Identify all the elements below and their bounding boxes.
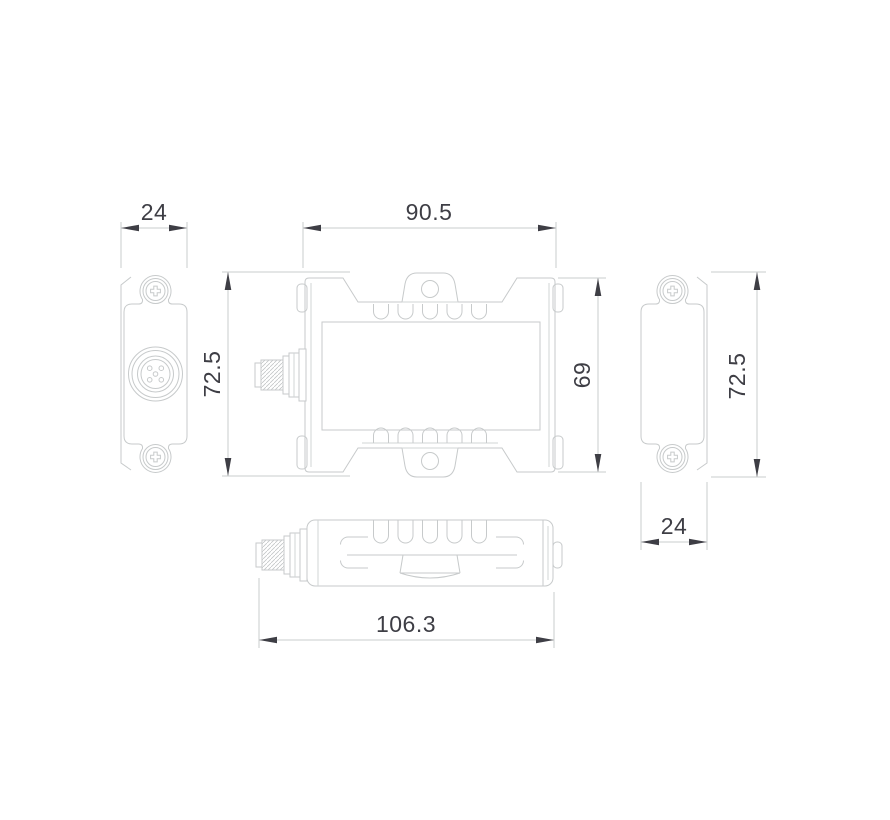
dimension-arrow: [754, 272, 761, 290]
connector-pin: [159, 378, 164, 383]
front-view: [255, 273, 563, 477]
dim-left-view-width: 24: [121, 199, 187, 268]
front-view-m12-connector: [255, 349, 306, 401]
dim-text-front-body-height: 69: [569, 362, 595, 389]
front-view-top-tab-hole: [422, 281, 439, 298]
top-view-right-bracket: [496, 537, 524, 568]
dim-text-top-length: 106.3: [376, 611, 436, 637]
dimension-arrow: [536, 637, 554, 644]
right-side-view: [641, 276, 707, 473]
right-view-top-screw: [660, 279, 685, 304]
left-view-top-screw: [143, 279, 168, 304]
technical-drawing-page: 24 90.5 72.5 69: [0, 0, 890, 820]
dimension-arrow: [225, 272, 232, 290]
right-view-bottom-screw: [660, 445, 685, 470]
front-view-body-outline: [305, 273, 555, 477]
top-view: [256, 520, 562, 586]
dimension-arrow: [225, 458, 232, 476]
left-view-connector-face: [129, 347, 183, 401]
dim-text-front-overall-height: 72.5: [199, 351, 225, 398]
dim-front-width: 90.5: [303, 199, 556, 268]
front-view-label-area: [322, 322, 540, 430]
connector-pin: [159, 366, 164, 371]
dim-right-view-width: 24: [641, 482, 707, 550]
dim-text-front-width: 90.5: [406, 199, 453, 225]
dim-front-body-height: 69: [558, 278, 606, 472]
dimensions: 24 90.5 72.5 69: [121, 199, 766, 648]
dimension-arrow: [595, 278, 602, 296]
dimension-arrow: [754, 459, 761, 477]
dim-text-left-width: 24: [141, 199, 168, 225]
dimension-arrow: [303, 225, 321, 232]
top-view-left-bracket: [341, 537, 369, 568]
dimension-arrow: [689, 539, 707, 546]
top-view-vent-slots: [374, 520, 487, 543]
dimension-arrow: [259, 637, 277, 644]
left-view-bottom-screw: [143, 445, 168, 470]
front-view-bottom-tab-hole: [422, 453, 439, 470]
drawing-canvas: 24 90.5 72.5 69: [0, 0, 890, 820]
connector-pin: [147, 378, 152, 383]
dim-text-right-width: 24: [661, 513, 688, 539]
connector-pin: [147, 366, 152, 371]
top-view-m12-connector: [256, 529, 307, 581]
top-view-body-outline: [307, 520, 553, 586]
left-side-view: [121, 276, 187, 473]
top-view-mount-tab-profile: [400, 555, 460, 578]
dim-text-right-height: 72.5: [724, 353, 750, 400]
left-view-body-outline: [124, 276, 187, 473]
dim-right-view-height: 72.5: [711, 272, 766, 477]
dimension-arrow: [538, 225, 556, 232]
right-view-body-outline: [641, 276, 704, 473]
dimension-arrow: [169, 225, 187, 232]
top-view-right-clip: [553, 542, 562, 568]
dimension-arrow: [121, 225, 139, 232]
connector-pin: [153, 372, 158, 377]
dimension-arrow: [641, 539, 659, 546]
front-view-top-vent-tabs: [374, 304, 487, 319]
dimension-arrow: [595, 454, 602, 472]
dim-top-view-length: 106.3: [259, 578, 554, 648]
